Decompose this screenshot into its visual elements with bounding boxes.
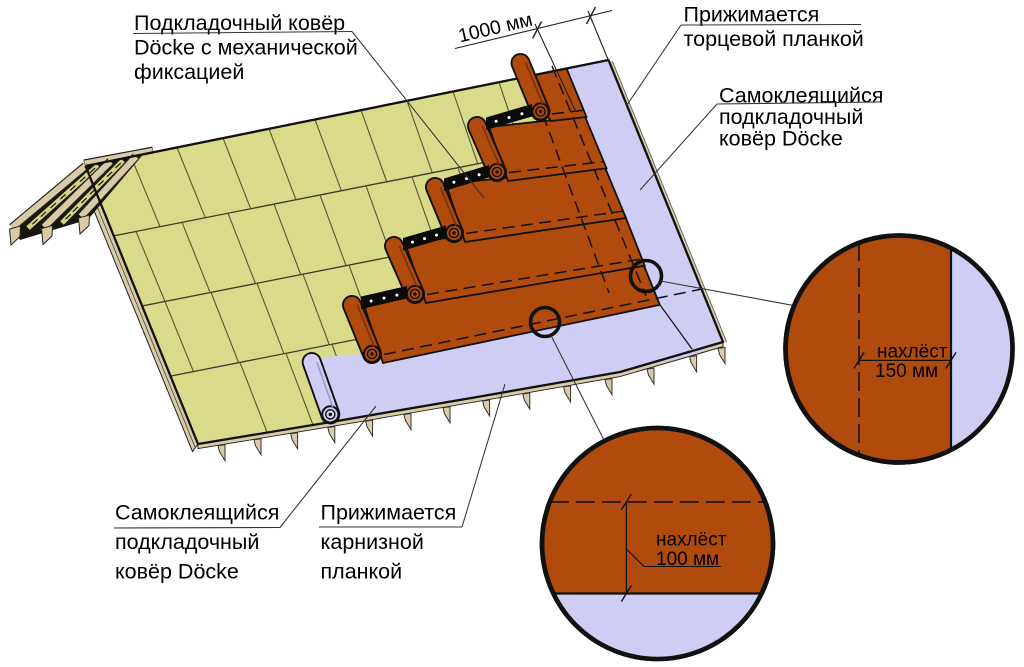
svg-text:100 мм: 100 мм [656,549,719,570]
svg-text:Прижимается: Прижимается [321,501,457,525]
svg-text:ковёр Döcke: ковёр Döcke [115,560,239,584]
svg-text:планкой: планкой [321,560,403,584]
svg-text:Самоклеящийся: Самоклеящийся [115,501,279,525]
svg-text:ковёр Döcke: ковёр Döcke [719,127,843,151]
svg-text:нахлёст: нахлёст [877,342,948,363]
svg-text:фиксацией: фиксацией [134,60,244,84]
svg-text:нахлёст: нахлёст [656,530,727,551]
svg-text:карнизной: карнизной [321,530,424,554]
svg-text:Döcke с механической: Döcke с механической [134,36,358,60]
svg-text:торцевой планкой: торцевой планкой [684,27,864,51]
svg-text:подкладочный: подкладочный [719,105,863,129]
svg-text:подкладочный: подкладочный [115,530,259,554]
svg-text:150 мм: 150 мм [875,361,938,382]
svg-text:Прижимается: Прижимается [684,3,820,27]
